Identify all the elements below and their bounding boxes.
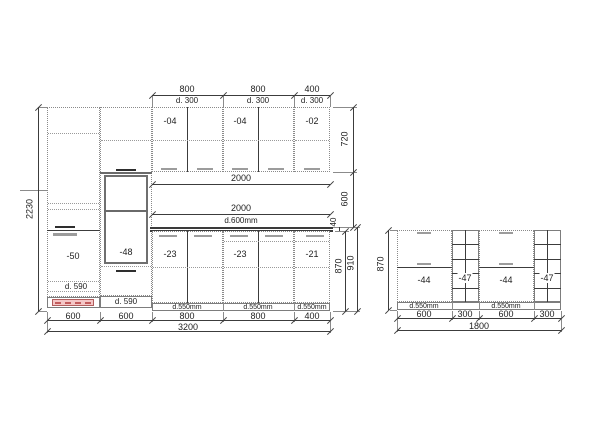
section-line xyxy=(100,172,152,174)
cabinet-label: -47 xyxy=(457,274,472,283)
cabinet-label: -02 xyxy=(305,117,318,126)
dim-line xyxy=(339,227,340,231)
shelf-line xyxy=(452,288,479,289)
dim-text: 800 xyxy=(179,85,194,94)
dim-text: 800 xyxy=(250,312,265,321)
dim-text: 300 xyxy=(539,310,554,319)
cabinet-label: -44 xyxy=(499,276,512,285)
cabinet-label: -47 xyxy=(539,274,554,283)
dim-text: 800 xyxy=(250,85,265,94)
dim-text: 2230 xyxy=(26,199,35,219)
dim-depth-text: d. 300 xyxy=(301,97,323,105)
shelf-line xyxy=(101,266,151,267)
handle-icon xyxy=(268,168,284,170)
handle-icon xyxy=(417,263,431,265)
cabinet-label: -48 xyxy=(119,248,132,257)
extension-line xyxy=(335,231,349,232)
cabinet-label: -23 xyxy=(163,250,176,259)
shelf-line xyxy=(153,140,222,141)
extension-line xyxy=(152,96,153,107)
extension-line xyxy=(390,310,397,311)
handle-icon xyxy=(499,263,513,265)
handle-icon xyxy=(232,168,248,170)
dim-text: 600 xyxy=(498,310,513,319)
dim-depth-text: d. 300 xyxy=(247,97,269,105)
handle-icon xyxy=(230,235,248,237)
cabinet-label-text: -47 xyxy=(539,273,554,283)
dim-text: 40 xyxy=(330,218,338,227)
dim-text: 720 xyxy=(341,131,350,146)
dim-text: 600 xyxy=(118,312,133,321)
cabinet-label-text: -47 xyxy=(457,273,472,283)
shelf-line xyxy=(48,203,99,204)
handle-icon xyxy=(161,168,177,170)
shelf-line xyxy=(295,140,329,141)
shelf-line xyxy=(534,288,561,289)
tall-cabinet-50 xyxy=(47,107,100,297)
band-divider xyxy=(294,303,295,311)
dim-tick xyxy=(558,327,565,334)
dim-text: 2000 xyxy=(231,174,251,183)
cabinet-label: -04 xyxy=(233,117,246,126)
dim-depth-text: d. 300 xyxy=(176,97,198,105)
shelf-line xyxy=(224,267,293,268)
cabinet-label: -23 xyxy=(233,250,246,259)
extension-line xyxy=(294,96,295,107)
dim-line xyxy=(38,107,39,311)
dim-text: 870 xyxy=(377,256,386,271)
heater-hatch xyxy=(55,302,91,304)
shelf-line xyxy=(153,267,222,268)
door-split-line xyxy=(47,230,100,231)
island-drawer-unit-2 xyxy=(479,230,534,302)
shelf-divider-line xyxy=(547,230,548,302)
handle-icon xyxy=(197,168,213,170)
drawer-divider-line xyxy=(479,267,534,268)
dim-total-text: 3200 xyxy=(178,323,198,332)
dim-depth-text: d.600mm xyxy=(224,217,257,225)
dim-line xyxy=(353,107,354,227)
handle-icon xyxy=(417,232,431,234)
band-divider xyxy=(452,302,453,310)
shelf-line xyxy=(48,133,99,134)
handle-icon xyxy=(53,233,77,236)
dim-text: 870 xyxy=(335,258,344,273)
cabinet-label: -04 xyxy=(163,117,176,126)
extension-line xyxy=(223,96,224,107)
handle-icon xyxy=(499,232,513,234)
shelf-line xyxy=(452,244,479,245)
shelf-line xyxy=(534,244,561,245)
wall-line xyxy=(20,190,47,191)
dim-line xyxy=(152,184,330,185)
island-drawer-unit-1 xyxy=(397,230,452,302)
dim-text: 800 xyxy=(179,312,194,321)
dim-tick xyxy=(327,181,334,188)
handle-icon xyxy=(116,270,136,272)
shelf-divider-line xyxy=(465,230,466,302)
dim-text: 600 xyxy=(65,312,80,321)
shelf-line xyxy=(48,291,99,292)
shelf-line xyxy=(452,259,479,260)
dim-text: 2000 xyxy=(231,204,251,213)
depth-label: d.550mm xyxy=(243,304,272,311)
shelf-line xyxy=(48,209,99,210)
dim-tick xyxy=(327,328,334,335)
plinth-heater xyxy=(52,299,94,306)
dim-text: 600 xyxy=(416,310,431,319)
band-divider xyxy=(479,302,480,310)
depth-label: d.550mm xyxy=(172,304,201,311)
drawer-line xyxy=(224,241,293,242)
dim-text: 910 xyxy=(347,255,356,270)
dim-total-text: 1800 xyxy=(469,322,489,331)
drawing-sheet: -50 d. 590 -48 d. 590 -04 -04 -02 -23 -2… xyxy=(0,0,600,425)
dim-line xyxy=(388,230,389,310)
handle-icon xyxy=(55,226,75,228)
dim-line xyxy=(152,214,330,215)
depth-label: d. 590 xyxy=(115,298,137,306)
drawer-divider-line xyxy=(397,267,452,268)
dim-text: 600 xyxy=(341,191,350,206)
handle-icon xyxy=(306,235,324,237)
appliance-divider-line xyxy=(104,210,148,212)
dim-line xyxy=(345,231,346,311)
shelf-line xyxy=(295,267,329,268)
shelf-line xyxy=(224,140,293,141)
handle-icon xyxy=(265,235,283,237)
shelf-line xyxy=(534,259,561,260)
depth-label: d.550mm xyxy=(297,304,326,311)
band-divider xyxy=(534,302,535,310)
handle-icon xyxy=(194,235,212,237)
dim-line xyxy=(357,227,358,311)
dim-text: 400 xyxy=(304,85,319,94)
handle-icon xyxy=(116,169,136,171)
shelf-line xyxy=(101,140,151,141)
cabinet-label: -50 xyxy=(66,252,79,261)
extension-line xyxy=(330,96,331,107)
handle-icon xyxy=(159,235,177,237)
dim-text: 400 xyxy=(304,312,319,321)
handle-icon xyxy=(304,168,320,170)
drawer-line xyxy=(295,241,329,242)
band-divider xyxy=(223,303,224,311)
cabinet-label: -44 xyxy=(417,276,430,285)
depth-label: d. 590 xyxy=(65,283,87,291)
extension-line xyxy=(390,230,397,231)
cabinet-label: -21 xyxy=(305,250,318,259)
dim-text: 300 xyxy=(457,310,472,319)
